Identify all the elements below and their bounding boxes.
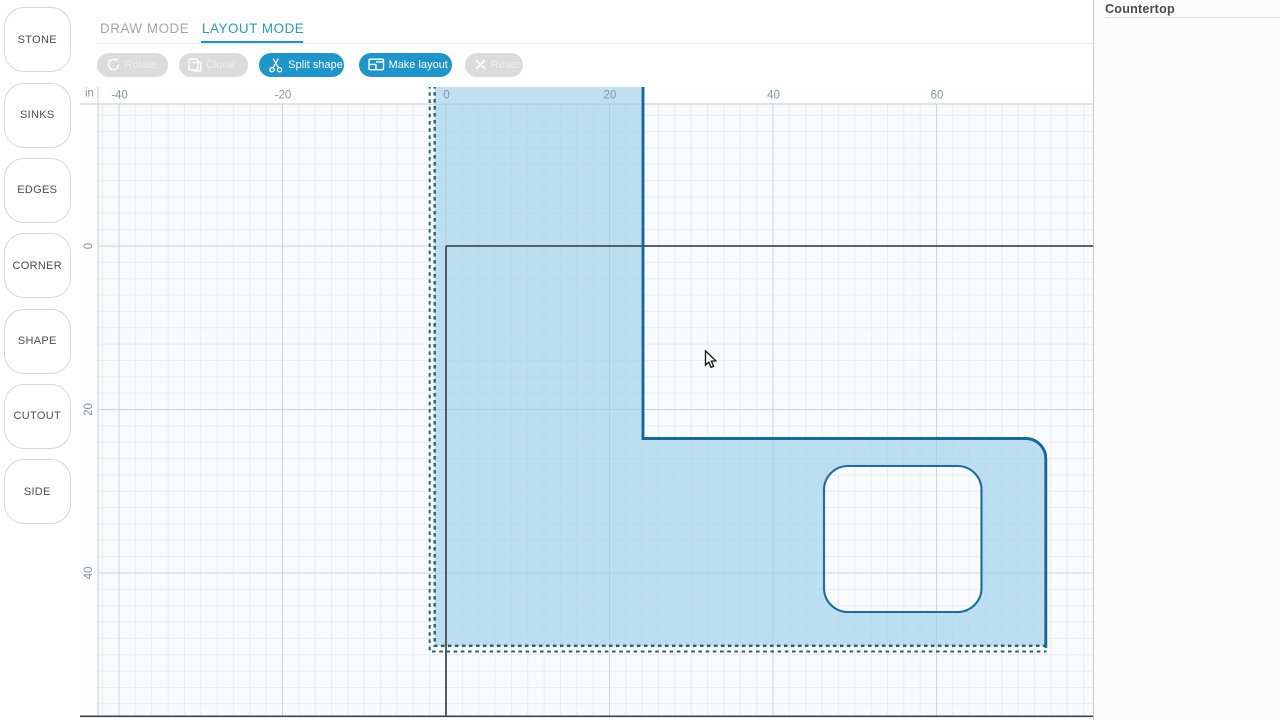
svg-text:0: 0 [83,243,95,249]
svg-text:60: 60 [931,90,944,102]
svg-text:0: 0 [443,90,449,102]
svg-text:-40: -40 [111,90,128,102]
svg-text:-20: -20 [275,90,292,102]
svg-text:in: in [85,88,94,100]
svg-text:40: 40 [83,567,95,580]
svg-text:20: 20 [83,403,95,416]
svg-text:20: 20 [604,90,617,102]
svg-text:40: 40 [767,90,780,102]
